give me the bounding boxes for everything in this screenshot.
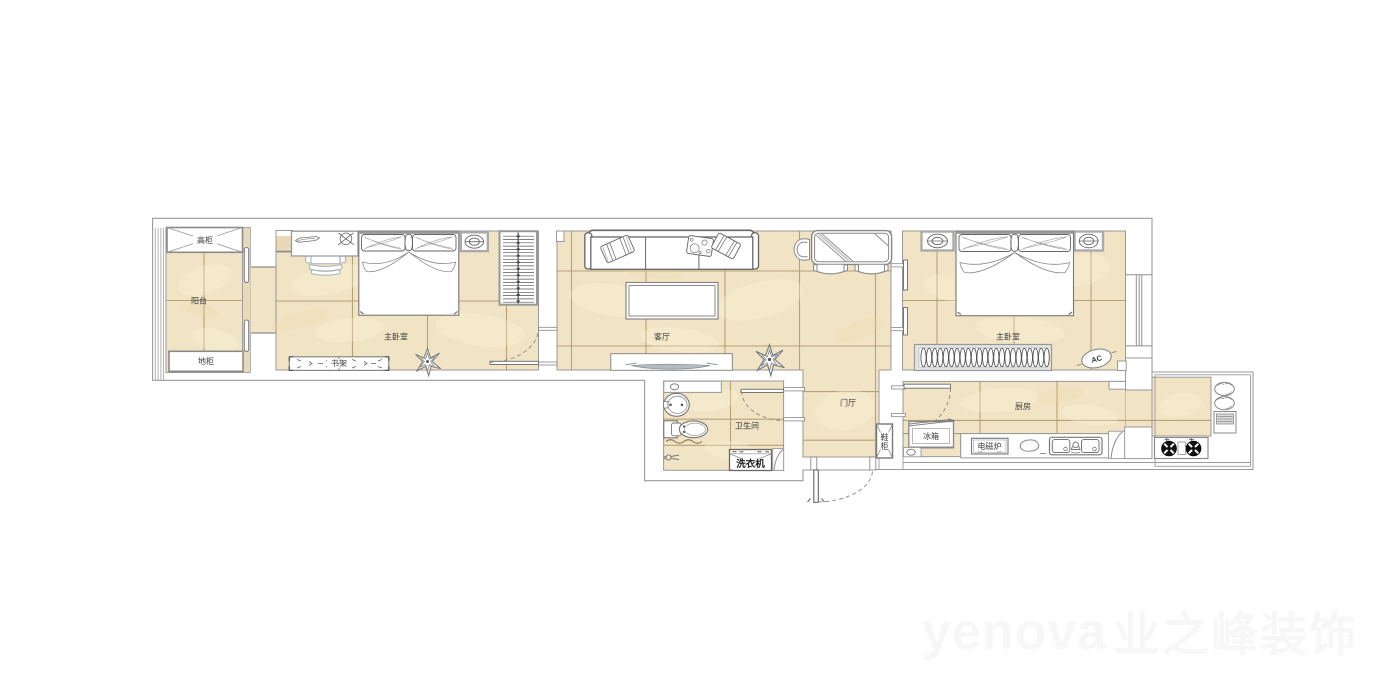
svg-text:主卧室: 主卧室 xyxy=(996,332,1020,342)
svg-text:厨房: 厨房 xyxy=(1015,401,1031,411)
svg-text:柜: 柜 xyxy=(881,441,889,451)
svg-text:洗衣机: 洗衣机 xyxy=(736,458,765,470)
svg-text:冰箱: 冰箱 xyxy=(923,431,939,441)
svg-text:业之峰装饰: 业之峰装饰 xyxy=(1113,608,1358,661)
svg-text:高柜: 高柜 xyxy=(197,235,213,245)
svg-text:客厅: 客厅 xyxy=(654,332,670,342)
svg-text:鞋: 鞋 xyxy=(881,432,889,442)
svg-text:书架: 书架 xyxy=(331,358,347,368)
svg-text:主卧室: 主卧室 xyxy=(384,332,408,342)
svg-text:门厅: 门厅 xyxy=(840,398,856,408)
svg-text:yenova: yenova xyxy=(922,603,1107,661)
svg-text:电磁炉: 电磁炉 xyxy=(978,441,1002,451)
svg-text:阳台: 阳台 xyxy=(191,296,207,306)
svg-text:地柜: 地柜 xyxy=(198,356,214,366)
svg-text:卫生间: 卫生间 xyxy=(735,421,759,431)
